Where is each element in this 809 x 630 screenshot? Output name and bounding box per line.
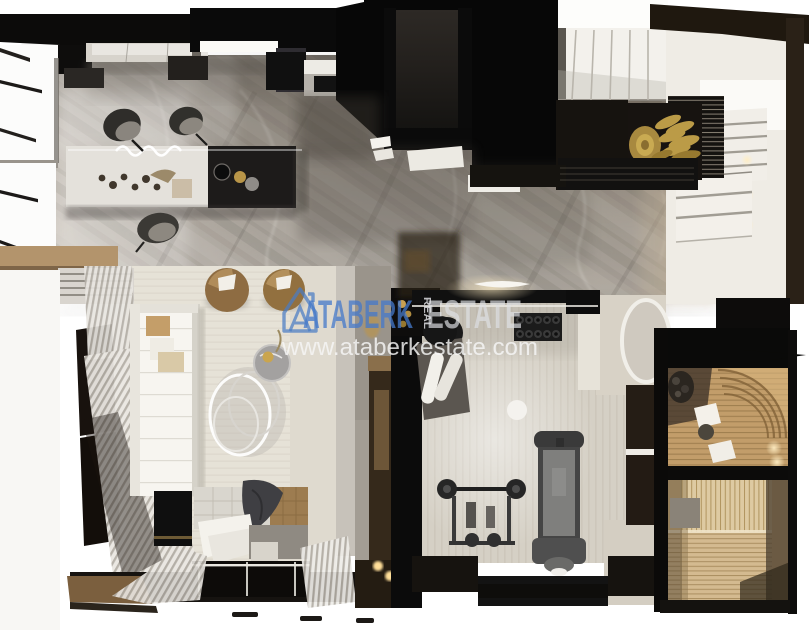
- svg-text:www.ataberkestate.com: www.ataberkestate.com: [281, 334, 538, 361]
- svg-text:ATABERK: ATABERK: [303, 293, 413, 337]
- svg-text:ESTATE: ESTATE: [427, 293, 522, 337]
